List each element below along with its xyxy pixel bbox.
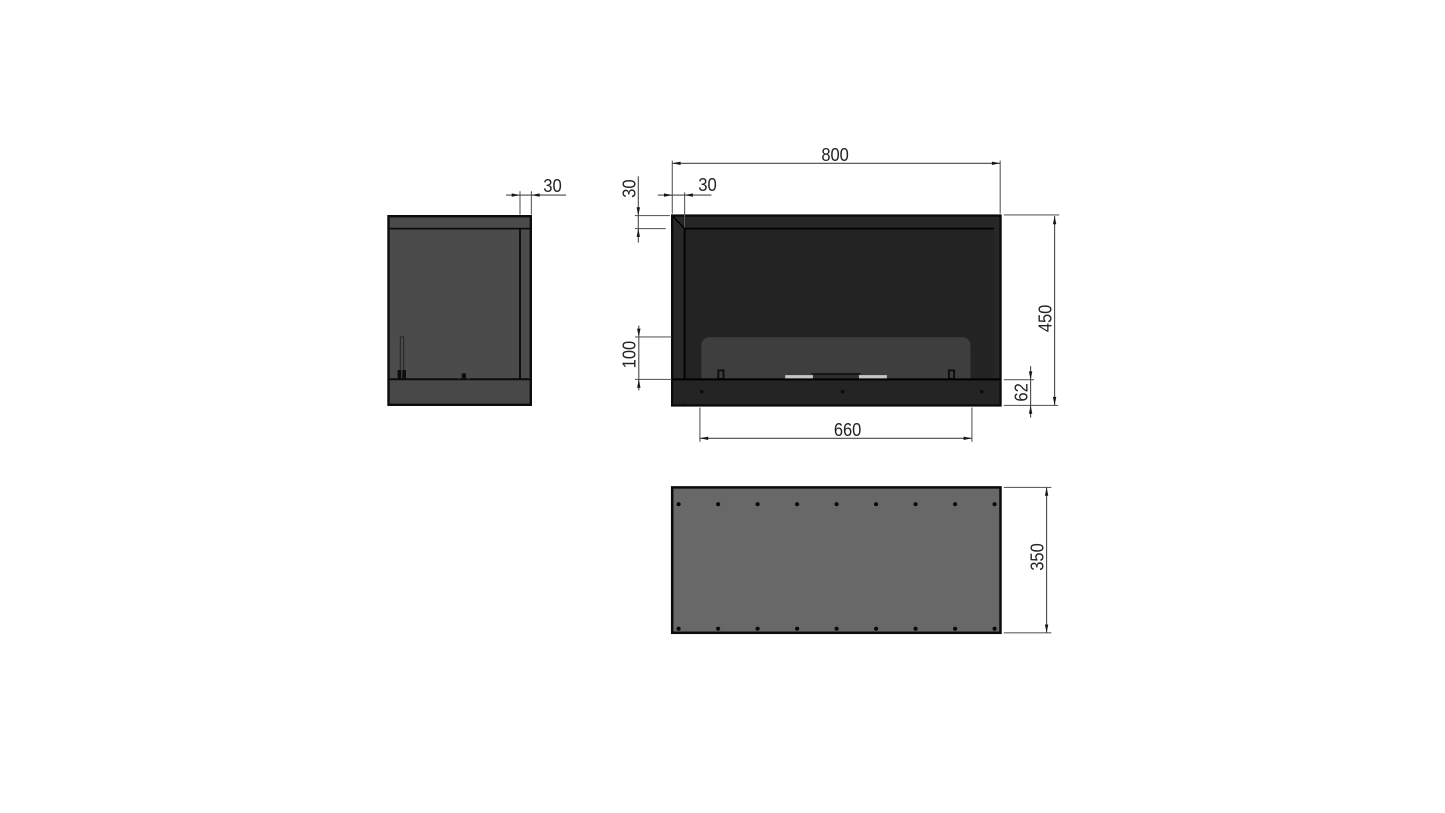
svg-text:62: 62 — [1011, 383, 1032, 402]
svg-text:30: 30 — [618, 179, 639, 198]
svg-text:450: 450 — [1035, 305, 1056, 333]
svg-text:30: 30 — [543, 175, 562, 196]
svg-text:30: 30 — [698, 174, 717, 195]
svg-text:350: 350 — [1027, 543, 1048, 571]
svg-text:660: 660 — [834, 419, 862, 440]
svg-text:800: 800 — [821, 144, 849, 165]
svg-text:100: 100 — [618, 341, 639, 369]
